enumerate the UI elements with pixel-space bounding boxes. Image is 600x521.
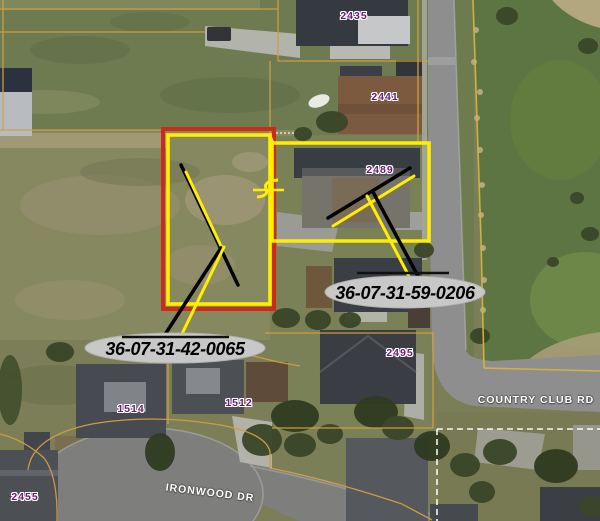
tree: [483, 439, 517, 465]
tree: [578, 38, 598, 54]
map-graphics: [0, 0, 600, 521]
street-label-country-club-rd: COUNTRY CLUB RD: [463, 394, 600, 406]
tree: [470, 328, 490, 344]
house-number-label-2441: 2441: [363, 91, 407, 103]
tree: [294, 127, 312, 141]
tree: [145, 433, 175, 471]
bush-dot: [471, 59, 477, 65]
tree: [317, 424, 343, 444]
parcel-dirt: [232, 152, 268, 172]
tree: [284, 433, 316, 457]
parked-car: [207, 27, 231, 41]
bush-dot: [477, 89, 483, 95]
tree: [581, 227, 599, 241]
house-roof-2495: [320, 330, 416, 404]
house-roof-2455: [0, 450, 58, 521]
grass-mottle: [110, 12, 190, 32]
tree: [547, 257, 559, 267]
tree: [271, 400, 319, 432]
grass-mottle: [30, 36, 130, 64]
parcel-callout-label-0065: 36-07-31-42-0065: [88, 339, 262, 360]
tree: [469, 481, 495, 503]
tree: [570, 192, 584, 204]
house-number-label-2435: 2435: [332, 10, 376, 22]
parcel-callout-label-0206: 36-07-31-59-0206: [327, 283, 483, 304]
tree: [414, 242, 434, 258]
house-number-label-1514: 1514: [109, 403, 153, 415]
house-number-label-2455: 2455: [3, 491, 47, 503]
tree: [496, 7, 518, 25]
tree: [414, 431, 450, 461]
house-number-label-1512: 1512: [217, 397, 261, 409]
tree: [534, 449, 578, 483]
tree: [46, 342, 74, 362]
roof-ridge: [0, 470, 58, 476]
house-number-label-2489: 2489: [358, 164, 402, 176]
tree: [316, 111, 348, 133]
grass-mottle: [15, 280, 125, 320]
house-number-label-2495: 2495: [378, 347, 422, 359]
tree: [450, 453, 480, 477]
grass-mottle: [160, 77, 300, 113]
house-roof: [246, 362, 288, 402]
tree: [305, 310, 331, 330]
shed-roof: [408, 306, 430, 328]
tree: [339, 312, 361, 328]
aerial-map-viewport[interactable]: 36-07-31-59-0206 36-07-31-42-0065 2435 2…: [0, 0, 600, 521]
house-roof-1512: [186, 368, 220, 394]
sidewalk: [422, 0, 427, 260]
grass-mottle: [80, 158, 200, 186]
driveway-cut: [428, 57, 455, 65]
roof-shade: [338, 104, 422, 114]
tree: [272, 308, 300, 328]
barn-roof: [0, 68, 32, 92]
